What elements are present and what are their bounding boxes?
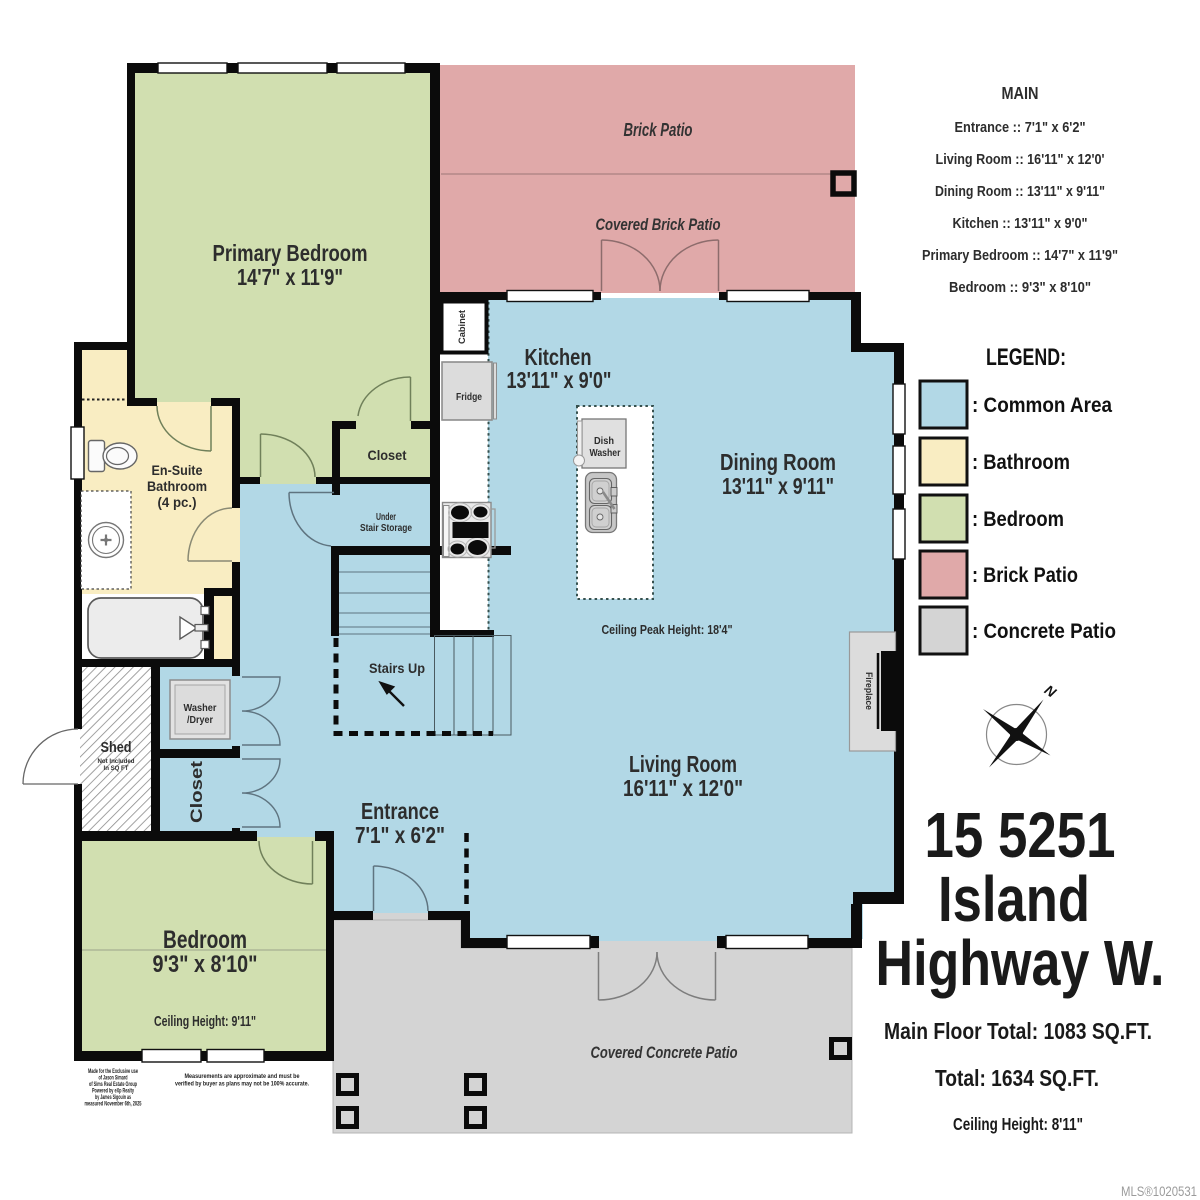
svg-text:Primary Bedroom :: 14'7" x 11': Primary Bedroom :: 14'7" x 11'9" [922, 247, 1118, 264]
svg-text:Living Room: Living Room [629, 751, 737, 777]
svg-text:13'11" x 9'0": 13'11" x 9'0" [507, 367, 612, 393]
svg-text:Fireplace: Fireplace [864, 672, 874, 710]
svg-text:Ceiling Height: 8'11": Ceiling Height: 8'11" [953, 1114, 1083, 1134]
svg-text:LEGEND:: LEGEND: [986, 344, 1066, 371]
svg-text:: Common Area: : Common Area [972, 394, 1112, 417]
svg-text:Ceiling Height: 9'11": Ceiling Height: 9'11" [154, 1013, 256, 1030]
svg-text:: Bathroom: : Bathroom [972, 451, 1070, 474]
svg-text:Kitchen :: 13'11" x 9'0": Kitchen :: 13'11" x 9'0" [953, 215, 1088, 232]
svg-text:14'7" x 11'9": 14'7" x 11'9" [237, 264, 343, 290]
svg-text:Entrance: Entrance [361, 798, 439, 824]
svg-text:Bedroom: Bedroom [163, 926, 247, 954]
svg-text:Cabinet: Cabinet [457, 309, 468, 344]
svg-text:7'1" x 6'2": 7'1" x 6'2" [355, 822, 445, 848]
svg-text:MLS®1020531: MLS®1020531 [1121, 1184, 1197, 1199]
svg-text:measured November 6th, 2025: measured November 6th, 2025 [85, 1101, 142, 1108]
svg-text:Fridge: Fridge [456, 391, 482, 403]
svg-text:MAIN: MAIN [1002, 83, 1039, 103]
svg-text:En-Suite: En-Suite [152, 463, 203, 478]
svg-text:(4 pc.): (4 pc.) [158, 495, 197, 510]
svg-text:15 5251: 15 5251 [925, 799, 1116, 871]
svg-text:Washer: Washer [590, 448, 621, 459]
svg-text:Island: Island [938, 863, 1090, 935]
svg-text:Bathroom: Bathroom [147, 479, 207, 494]
svg-text:Not Included: Not Included [98, 758, 135, 765]
svg-text:/Dryer: /Dryer [187, 715, 213, 726]
svg-text:Closet: Closet [368, 448, 407, 463]
svg-text:: Brick Patio: : Brick Patio [972, 564, 1078, 587]
svg-text:In SQ FT: In SQ FT [104, 765, 129, 772]
svg-text:Main Floor Total: 1083 SQ.FT.: Main Floor Total: 1083 SQ.FT. [884, 1018, 1152, 1044]
svg-text:Total: 1634 SQ.FT.: Total: 1634 SQ.FT. [935, 1065, 1099, 1091]
svg-text:9'3" x 8'10": 9'3" x 8'10" [153, 951, 258, 978]
svg-text:Under: Under [376, 512, 396, 523]
svg-text:Living Room :: 16'11" x 12'0': Living Room :: 16'11" x 12'0' [936, 151, 1105, 168]
svg-text:Washer: Washer [184, 703, 217, 714]
svg-text:13'11" x 9'11": 13'11" x 9'11" [722, 473, 834, 499]
svg-text:Highway W.: Highway W. [876, 927, 1165, 999]
svg-text:Measurements are approximate a: Measurements are approximate and must be [185, 1073, 300, 1080]
svg-text:Dish: Dish [594, 436, 614, 447]
svg-text:Entrance :: 7'1" x 6'2": Entrance :: 7'1" x 6'2" [955, 119, 1086, 136]
svg-text:Dining Room :: 13'11" x 9'11": Dining Room :: 13'11" x 9'11" [935, 183, 1105, 200]
svg-text:Covered Concrete Patio: Covered Concrete Patio [591, 1043, 738, 1062]
svg-text:Closet: Closet [188, 760, 206, 823]
svg-text:Stair Storage: Stair Storage [360, 523, 412, 534]
svg-text:Bedroom :: 9'3" x 8'10": Bedroom :: 9'3" x 8'10" [949, 279, 1091, 296]
svg-text:Stairs Up: Stairs Up [369, 661, 425, 676]
svg-text:: Bedroom: : Bedroom [972, 508, 1064, 531]
svg-text:Ceiling Peak Height: 18'4": Ceiling Peak Height: 18'4" [602, 622, 733, 637]
svg-text:Primary Bedroom: Primary Bedroom [213, 240, 368, 266]
svg-text:verified by buyer as plans may: verified by buyer as plans may not be 10… [175, 1081, 309, 1088]
svg-text:Covered Brick Patio: Covered Brick Patio [596, 215, 721, 234]
svg-text:Shed: Shed [101, 739, 132, 756]
svg-text:Dining Room: Dining Room [720, 449, 836, 475]
svg-text:16'11" x 12'0": 16'11" x 12'0" [623, 775, 743, 801]
svg-text:Brick Patio: Brick Patio [624, 119, 693, 140]
svg-text:: Concrete Patio: : Concrete Patio [972, 620, 1116, 643]
